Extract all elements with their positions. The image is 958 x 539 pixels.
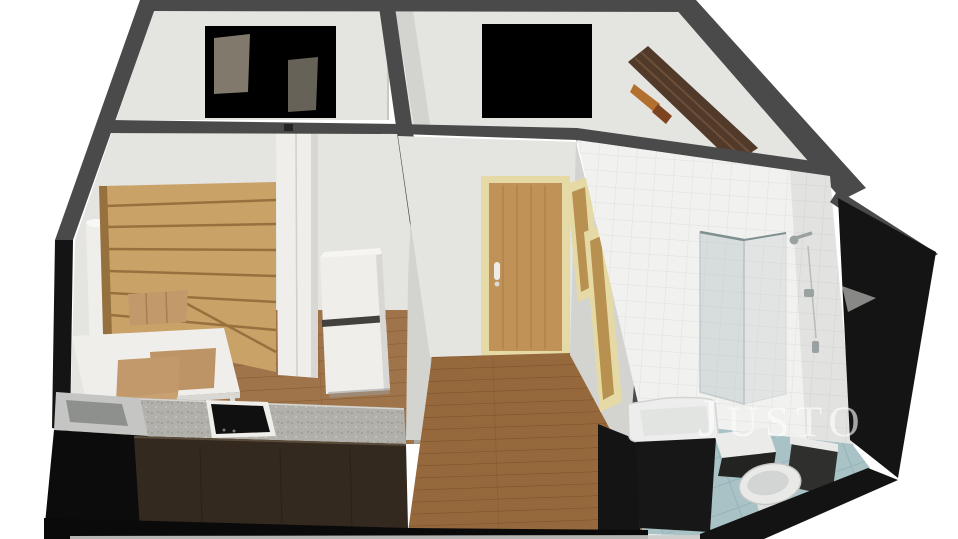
window-mullion bbox=[535, 29, 539, 113]
shower-mixer bbox=[804, 289, 814, 297]
window-reflection bbox=[214, 34, 250, 94]
north-wall-top bbox=[142, 0, 692, 12]
bedroom-left-window bbox=[205, 26, 336, 118]
shower-handset bbox=[812, 341, 819, 353]
sink-unit bbox=[44, 392, 150, 534]
door-handle-plate bbox=[495, 282, 500, 287]
wall-detail bbox=[284, 124, 293, 131]
watermark-initial: J bbox=[698, 388, 726, 448]
cooktop bbox=[206, 400, 276, 438]
fridge bbox=[320, 248, 390, 398]
dining-chair-back bbox=[128, 290, 188, 326]
apartment-cutaway-svg: JUSTO bbox=[0, 0, 958, 539]
floorplan-3d-render: JUSTO bbox=[0, 0, 958, 539]
cooktop-surface bbox=[211, 404, 270, 434]
living-room bbox=[70, 128, 434, 444]
chair-backrest bbox=[128, 290, 188, 326]
sink-basin bbox=[66, 400, 128, 426]
bedroom-left bbox=[116, 8, 388, 120]
shower-glass-front bbox=[700, 232, 744, 404]
shelf-line bbox=[108, 249, 276, 250]
window-mullion bbox=[268, 31, 272, 113]
wardrobe-seam bbox=[296, 128, 297, 376]
chair-slat bbox=[146, 293, 147, 324]
counter-front-panel bbox=[134, 436, 408, 530]
shower-glass-side bbox=[744, 233, 786, 404]
bedroom-right-window bbox=[482, 24, 592, 118]
bathtub-front-panel bbox=[636, 438, 716, 532]
watermark-rest: USTO bbox=[727, 399, 867, 446]
chair-slat bbox=[166, 292, 167, 323]
cooktop-knob bbox=[223, 429, 226, 432]
door-handle bbox=[494, 262, 500, 280]
window-reflection bbox=[288, 57, 318, 112]
shower-head bbox=[790, 236, 799, 245]
sink-cabinet-front bbox=[44, 430, 150, 534]
kitchen-counter bbox=[44, 392, 408, 534]
entry-door bbox=[481, 176, 570, 357]
cooktop-knob bbox=[233, 430, 236, 433]
wardrobe-side bbox=[311, 128, 318, 378]
wardrobe bbox=[276, 128, 318, 378]
